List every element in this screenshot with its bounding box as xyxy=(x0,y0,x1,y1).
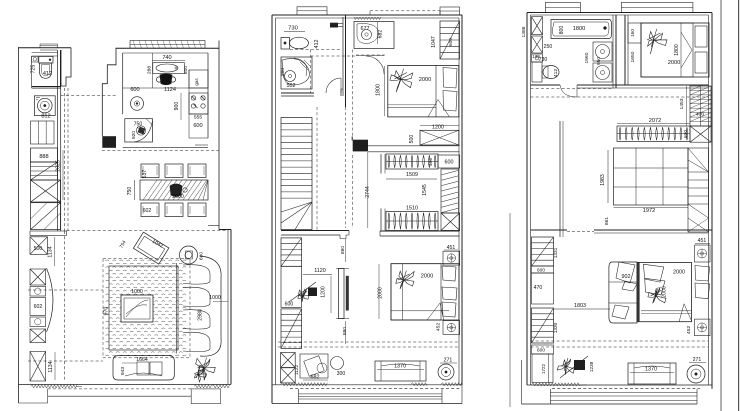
svg-text:682: 682 xyxy=(378,30,384,39)
svg-text:600: 600 xyxy=(130,87,139,93)
svg-text:451: 451 xyxy=(698,238,707,244)
svg-text:1972: 1972 xyxy=(643,208,655,214)
svg-text:gas: gas xyxy=(194,78,199,86)
svg-text:250: 250 xyxy=(544,44,553,50)
svg-text:2000: 2000 xyxy=(419,77,431,83)
svg-text:2000: 2000 xyxy=(673,270,685,276)
svg-text:880: 880 xyxy=(342,327,348,336)
svg-text:812: 812 xyxy=(41,114,50,120)
svg-text:2000: 2000 xyxy=(662,286,668,298)
svg-text:600: 600 xyxy=(285,302,294,308)
svg-text:1803: 1803 xyxy=(574,303,586,309)
svg-text:502: 502 xyxy=(287,83,296,89)
svg-text:602: 602 xyxy=(143,208,152,214)
svg-text:1370: 1370 xyxy=(645,367,657,373)
svg-text:725: 725 xyxy=(31,65,37,74)
svg-text:2000: 2000 xyxy=(668,60,680,66)
svg-text:412: 412 xyxy=(314,40,320,49)
svg-text:1800: 1800 xyxy=(376,84,382,96)
svg-text:2980: 2980 xyxy=(198,309,204,321)
svg-text:750: 750 xyxy=(134,122,143,128)
svg-text:1370: 1370 xyxy=(394,364,406,370)
svg-text:537: 537 xyxy=(142,170,148,179)
svg-text:1386: 1386 xyxy=(521,26,527,37)
svg-text:271: 271 xyxy=(693,357,702,363)
svg-text:2000: 2000 xyxy=(172,194,184,200)
svg-text:600: 600 xyxy=(193,123,202,129)
svg-text:888: 888 xyxy=(39,154,48,160)
svg-text:452: 452 xyxy=(436,323,442,332)
svg-text:600: 600 xyxy=(537,268,545,274)
svg-text:880: 880 xyxy=(340,246,346,255)
svg-text:452: 452 xyxy=(686,326,692,335)
svg-text:412: 412 xyxy=(43,71,52,77)
svg-text:970: 970 xyxy=(104,307,110,316)
svg-text:602: 602 xyxy=(34,304,43,310)
svg-text:943: 943 xyxy=(120,367,126,376)
svg-text:861: 861 xyxy=(604,217,610,226)
svg-text:1800: 1800 xyxy=(573,26,585,32)
svg-text:2072: 2072 xyxy=(649,118,661,124)
svg-text:412: 412 xyxy=(553,69,559,78)
svg-text:750: 750 xyxy=(127,187,133,196)
svg-text:730: 730 xyxy=(288,26,298,32)
svg-text:1122: 1122 xyxy=(294,365,300,376)
svg-text:271: 271 xyxy=(444,358,453,364)
svg-text:1560: 1560 xyxy=(584,52,590,63)
svg-text:600: 600 xyxy=(183,66,189,75)
svg-text:1047: 1047 xyxy=(431,36,437,48)
svg-text:1238: 1238 xyxy=(589,361,595,372)
svg-text:1000: 1000 xyxy=(131,289,143,295)
svg-text:920: 920 xyxy=(131,131,137,140)
svg-text:1120: 1120 xyxy=(314,268,326,274)
svg-text:1331: 1331 xyxy=(553,247,559,258)
svg-text:1509: 1509 xyxy=(406,172,418,178)
svg-text:800: 800 xyxy=(559,26,565,35)
svg-text:600: 600 xyxy=(683,130,689,138)
svg-text:1200: 1200 xyxy=(321,286,327,298)
svg-text:300: 300 xyxy=(337,371,346,377)
svg-text:600: 600 xyxy=(448,38,454,46)
svg-text:2000: 2000 xyxy=(378,287,384,299)
svg-text:400: 400 xyxy=(696,112,705,118)
svg-text:500: 500 xyxy=(409,135,415,144)
svg-text:730: 730 xyxy=(539,57,548,63)
svg-text:1000: 1000 xyxy=(209,295,221,301)
svg-text:160: 160 xyxy=(630,29,636,37)
svg-text:902: 902 xyxy=(622,274,631,280)
svg-text:500: 500 xyxy=(34,246,43,252)
svg-text:950: 950 xyxy=(596,57,602,65)
svg-text:2000: 2000 xyxy=(421,274,433,280)
svg-text:1722: 1722 xyxy=(541,363,546,374)
svg-text:677: 677 xyxy=(361,26,370,32)
svg-text:470: 470 xyxy=(534,285,543,291)
svg-text:2625: 2625 xyxy=(56,160,62,172)
svg-text:555: 555 xyxy=(194,115,203,121)
svg-text:600: 600 xyxy=(445,160,454,166)
svg-text:1134: 1134 xyxy=(48,246,54,257)
svg-text:1330: 1330 xyxy=(553,322,559,333)
svg-text:1453: 1453 xyxy=(679,98,685,109)
svg-text:406: 406 xyxy=(428,158,434,166)
svg-text:1124: 1124 xyxy=(164,87,176,93)
svg-text:740: 740 xyxy=(162,55,171,61)
svg-text:1983: 1983 xyxy=(600,174,606,186)
svg-text:1800: 1800 xyxy=(674,44,680,56)
svg-text:1664: 1664 xyxy=(136,357,148,363)
svg-text:682: 682 xyxy=(311,375,320,381)
svg-text:600: 600 xyxy=(537,348,545,354)
svg-text:890: 890 xyxy=(280,68,286,76)
svg-text:1545: 1545 xyxy=(422,184,428,196)
svg-text:1134: 1134 xyxy=(48,361,54,372)
svg-text:900: 900 xyxy=(174,102,180,111)
svg-text:1650: 1650 xyxy=(630,51,636,62)
svg-text:1510: 1510 xyxy=(406,206,418,212)
svg-text:288: 288 xyxy=(147,66,153,75)
